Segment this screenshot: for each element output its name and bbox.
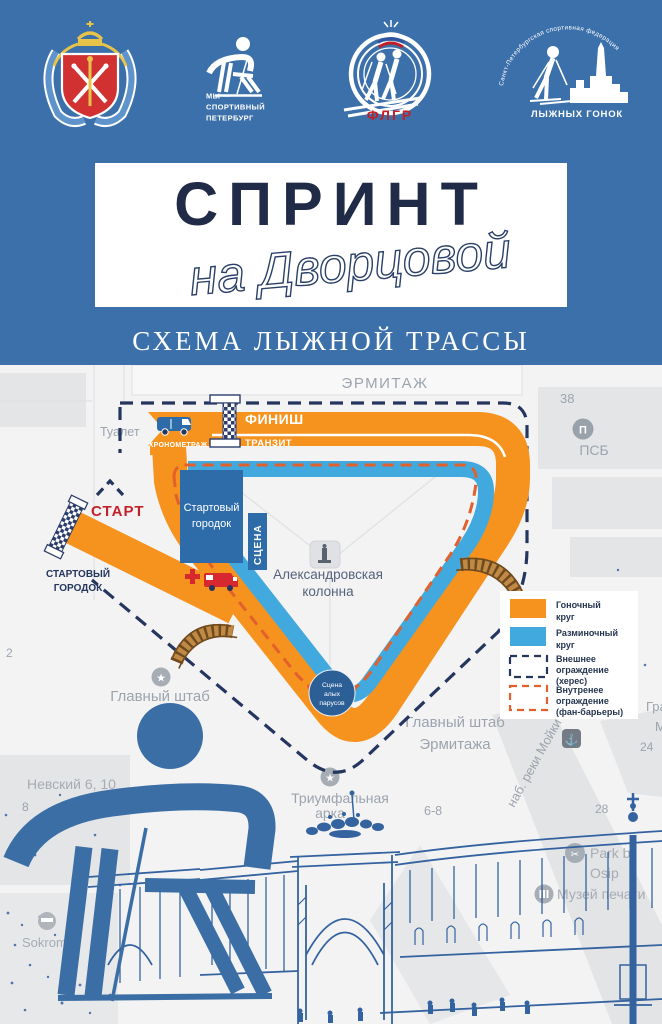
m-label: М [655,719,662,734]
num8-label: 8 [22,800,29,814]
sails-label-3: парусов [319,700,345,707]
legend-warmup-2: круг [556,640,575,650]
triumf-label-1: Триумфальная [291,790,389,806]
column-label-2: колонна [302,584,354,599]
num68-label: 6-8 [424,804,442,818]
flgr-logo: ФЛГР [344,20,429,123]
flgr-label: ФЛГР [367,107,414,123]
park-label-1: Park b [590,845,631,861]
federation-name: ЛЫЖНЫХ ГОНОК [531,109,623,120]
num2-label: 2 [6,646,13,660]
legend-warmup-swatch [510,627,546,646]
sport-petersburg-line1: МЫ — [206,92,231,101]
course-map-svg: ЭРМИТАЖ 38 П ПСБ Туалет 2 ★ Главный штаб… [0,365,662,1024]
star-glyph: ★ [156,673,166,685]
nevsky-label: Невский 6, 10 [27,776,116,792]
legend-warmup-1: Разминочный [556,628,618,638]
start-area-label-2: ГОРОДОК [54,583,103,594]
glavny-shtab-label: Главный штаб [110,688,210,705]
fortress-silhouette-icon [570,42,628,103]
timing-label: ХРОНОМЕТРАЖ [149,442,208,449]
transit-label: ТРАНЗИТ [245,438,292,449]
legend-outer-1: Внешнее [556,654,596,664]
hermitage-label: ЭРМИТАЖ [342,375,429,392]
title-box: СПРИНТ на Дворцовой [95,163,567,307]
finish-label: ФИНИШ [245,411,304,427]
psb-label: ПСБ [579,442,608,458]
legend-outer-2: ограждение [556,665,609,675]
sport-petersburg-line3: ПЕТЕРБУРГ [206,114,254,123]
skier-head-icon [137,703,203,769]
num24-label: 24 [640,740,654,754]
title-script-svg: на Дворцовой [95,163,567,307]
legend-inner-3: (фан-барьеры) [556,707,623,717]
num38-label: 38 [560,391,574,406]
alexander-column: Александровская колонна [273,541,383,599]
star-glyph2: ★ [325,773,335,785]
legend-inner-1: Внутренее [556,685,603,695]
column-label-1: Александровская [273,567,383,582]
legend: Гоночный круг Разминочный круг Внешнее о… [500,591,638,719]
start-town-box [180,470,243,563]
gra-label: Гра [646,699,662,714]
legend-race-2: круг [556,612,575,622]
start-town-label-1: Стартовый [184,502,240,514]
legend-race-1: Гоночный [556,600,601,610]
start-label: СТАРТ [91,503,144,520]
subtitle: СХЕМА ЛЫЖНОЙ ТРАССЫ [0,326,662,357]
num28-label: 28 [595,802,609,816]
title-script: на Дворцовой [187,222,513,306]
park-label-2: Osip [590,865,619,881]
start-area-label-1: СТАРТОВЫЙ [46,567,110,580]
sport-petersburg-logo: МЫ — СПОРТИВНЫЙ ПЕТЕРБУРГ [206,37,265,123]
sails-label-2: алых [324,691,341,698]
header-logos: МЫ — СПОРТИВНЫЙ ПЕТЕРБУРГ ФЛГР [0,0,662,150]
legend-race-swatch [510,599,546,618]
bridge-left [167,615,237,669]
sails-label-1: Сцена [322,682,342,689]
poster: МЫ — СПОРТИВНЫЙ ПЕТЕРБУРГ ФЛГР [0,0,662,1024]
anchor-glyph: ⚓ [565,734,579,747]
gse-label-2: Эрмитажа [419,736,491,753]
gse-label-1: Главный штаб [405,714,505,731]
sport-petersburg-line2: СПОРТИВНЫЙ [206,103,265,112]
stage-label: СЦЕНА [253,524,264,565]
spb-coat-of-arms-icon [48,21,131,122]
ski-federation-logo: Санкт-Петербургская спортивная федерация… [498,24,628,120]
mini-skier-head-icon [236,37,250,51]
scissors-glyph: ✂ [571,850,579,861]
legend-inner-2: ограждение [556,696,609,706]
people-sketch [298,998,531,1024]
course-map: ЭРМИТАЖ 38 П ПСБ Туалет 2 ★ Главный штаб… [0,365,662,1024]
psb-icon-glyph: П [579,425,587,437]
start-town-label-2: городок [192,518,231,530]
